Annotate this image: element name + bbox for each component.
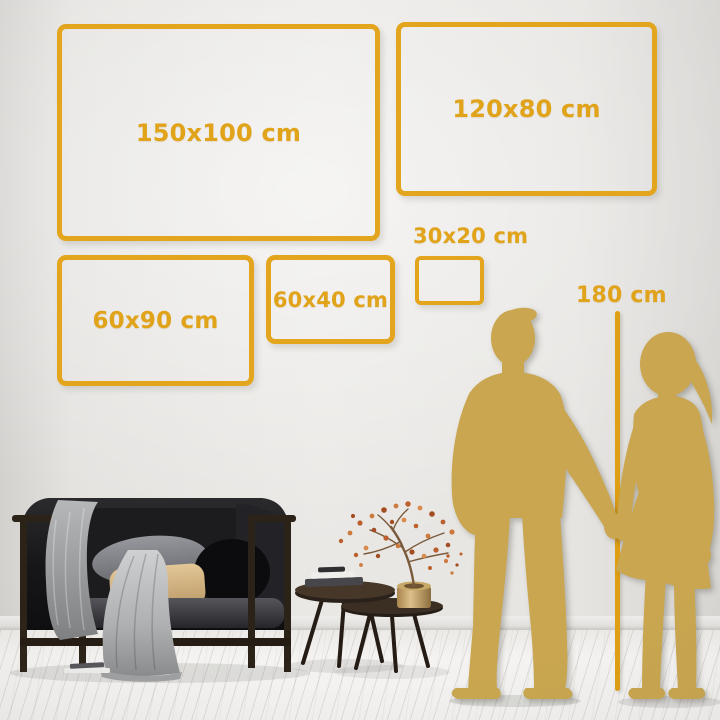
wall-art-size-guide: 150x100 cm 120x80 cm 60x90 cm 60x40 cm 3…: [0, 0, 720, 720]
size-frame-150x100: 150x100 cm: [57, 24, 380, 241]
size-label-150x100: 150x100 cm: [136, 119, 301, 147]
woman-silhouette: [614, 332, 714, 699]
table-books: [305, 567, 363, 587]
size-label-120x80: 120x80 cm: [452, 95, 600, 123]
size-label-60x40: 60x40 cm: [273, 288, 388, 312]
size-frame-120x80: 120x80 cm: [396, 22, 657, 196]
man-right-foot: [523, 688, 572, 699]
size-frame-60x40: 60x40 cm: [266, 255, 395, 344]
size-frame-60x90: 60x90 cm: [57, 255, 254, 386]
woman-left-foot: [628, 688, 665, 699]
size-label-30x20: 30x20 cm: [413, 224, 528, 248]
sofa: [12, 498, 296, 682]
man-left-foot: [452, 688, 501, 699]
size-label-60x90: 60x90 cm: [92, 308, 218, 334]
dark-pillow: [194, 539, 270, 605]
couple-silhouette: [440, 300, 720, 710]
size-frame-30x20: [415, 256, 484, 305]
man-silhouette: [452, 306, 624, 699]
living-room-furniture: [0, 460, 470, 720]
coffee-tables: [295, 501, 463, 671]
woman-right-foot: [668, 688, 705, 699]
